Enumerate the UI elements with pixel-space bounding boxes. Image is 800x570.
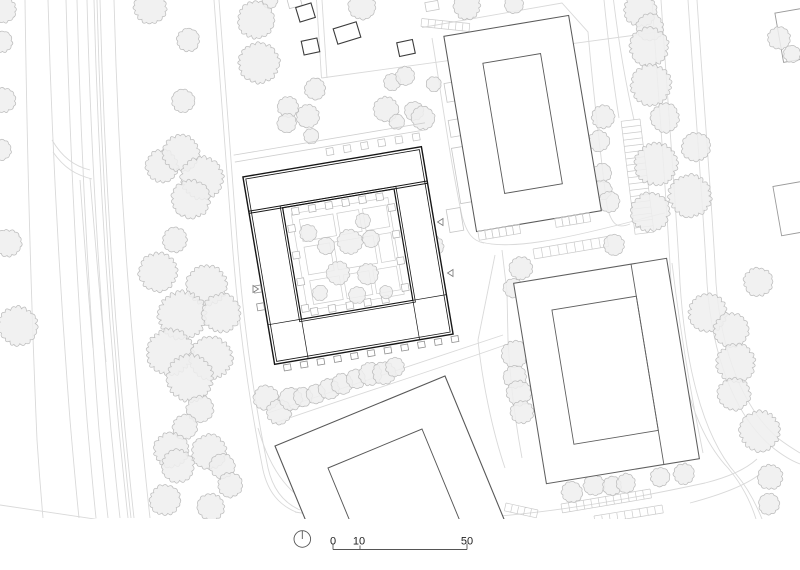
svg-text:0: 0 xyxy=(330,536,336,548)
svg-text:10: 10 xyxy=(353,536,365,548)
svg-text:50: 50 xyxy=(461,536,473,548)
